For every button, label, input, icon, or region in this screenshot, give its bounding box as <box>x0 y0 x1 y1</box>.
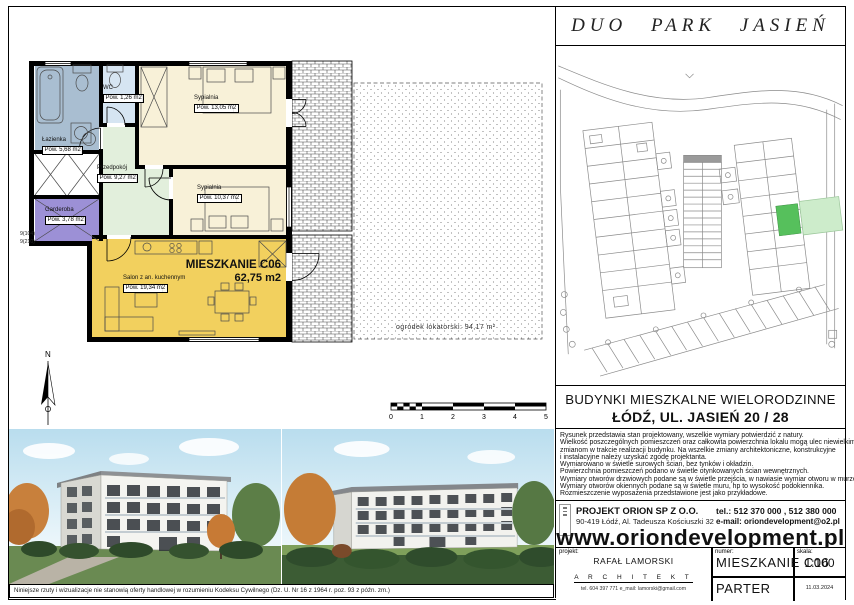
scale-tick: 3 <box>482 414 486 421</box>
architect-name: RAFAŁ LAMORSKI <box>556 556 711 566</box>
site-plan-box <box>556 46 845 386</box>
scale-bar: 0 1 2 3 4 5 <box>389 403 548 421</box>
drawing-floor: PARTER <box>716 581 771 596</box>
room-area: Pow. 3,78 m2 <box>45 216 86 225</box>
dim-label: 9(210) <box>20 239 35 245</box>
dim-label: 9(104) <box>20 231 35 237</box>
render-2-image <box>282 429 554 584</box>
drawing-sheet-page: N 0 1 2 3 4 5 ogródek <box>0 0 854 605</box>
note-line: Wielkość poszczególnych pomieszczeń oraz… <box>560 439 845 446</box>
room-area: Pow. 5,68 m2 <box>42 146 83 155</box>
notes-box: Rysunek przedstawia stan projektowany, w… <box>556 429 845 501</box>
note-line: Rysunek przedstawia stan projektowany, w… <box>560 432 845 439</box>
room-label-bedroom2: Sypialnia Pom. C06.02 Pow. 10,37 m2 <box>197 185 221 193</box>
development-title-box: DUO PARK JASIEŃ <box>556 7 845 46</box>
site-building-left <box>583 121 689 319</box>
room-name: Sypialnia <box>194 95 218 102</box>
site-plan-drawing <box>556 46 845 384</box>
garden-label: ogródek lokatorski: 94,17 m² <box>396 324 496 331</box>
room-area: Pow. 1,26 m2 <box>103 94 144 103</box>
company-box: PROJEKT ORION SP Z O.O. 90-419 Łódź, Al.… <box>556 501 845 548</box>
site-unit-garden <box>799 197 843 235</box>
render-1-image <box>9 429 281 584</box>
room-fills <box>35 65 286 337</box>
room-name: Garderoba <box>45 207 74 214</box>
note-line: Wymiarowano w świetle surowych ścian, be… <box>560 461 845 468</box>
scale-tick: 2 <box>451 414 455 421</box>
terrace-hatch <box>292 61 352 342</box>
building-render-1 <box>9 429 281 584</box>
scale-tick: 5 <box>544 414 548 421</box>
legal-disclaimer: Niniejsze rzuty i wizualizacje nie stano… <box>9 584 554 598</box>
note-line: Wymiary otworów drzwiowych podane są w ś… <box>560 476 845 483</box>
shaft-zone-fill <box>35 154 99 195</box>
room-label-hall: Przedpokój Pom. C06.07 Pow. 9,27 m2 <box>97 165 127 173</box>
scale-tick: 1 <box>420 414 424 421</box>
project-address: ŁÓDŹ, UL. JASIEŃ 20 / 28 <box>556 409 845 425</box>
room-area: Pow. 10,37 m2 <box>197 194 242 203</box>
tenant-garden <box>354 83 542 339</box>
room-label-bedroom1: Sypialnia Pom. C06.03 Pow. 13,05 m2 <box>194 95 218 103</box>
architect-title: A R C H I T E K T <box>574 574 693 583</box>
project-title-box: BUDYNKI MIESZKALNE WIELORODZINNE ŁÓDŹ, U… <box>556 386 845 429</box>
drawing-scale: 1:100 <box>794 556 845 570</box>
floor-plan-area: N 0 1 2 3 4 5 ogródek <box>9 7 555 429</box>
legal-disclaimer-text: Niniejsze rzuty i wizualizacje nie stano… <box>14 587 390 594</box>
site-building-right <box>716 133 845 297</box>
project-type: BUDYNKI MIESZKALNE WIELORODZINNE <box>556 392 845 407</box>
floor-plan-drawing: N 0 1 2 3 4 5 ogródek <box>9 7 555 429</box>
titleblock-divider <box>711 576 845 578</box>
title-column: DUO PARK JASIEŃ <box>555 7 845 598</box>
drawing-date: 11.03.2024 <box>794 585 845 591</box>
sheet-frame: N 0 1 2 3 4 5 ogródek <box>8 6 846 600</box>
room-name: Sypialnia <box>197 185 221 192</box>
apartment-name: MIESZKANIE C06 <box>171 259 281 272</box>
architect-block: RAFAŁ LAMORSKI A R C H I T E K T tel. 60… <box>556 556 711 592</box>
label-project: projekt: <box>559 549 579 555</box>
room-area: Pow. 9,27 m2 <box>97 174 138 183</box>
site-parking-center <box>684 155 722 267</box>
note-line: Powierzchnia pomieszczeń podano w świetl… <box>560 468 845 475</box>
room-area: Pow. 13,05 m2 <box>194 104 239 113</box>
company-phone: tel.: 512 370 000 , 512 380 000 <box>716 506 836 516</box>
room-label-wc: WC Pom. C06.05 Pow. 1,26 m2 <box>103 85 113 93</box>
titleblock-divider <box>711 548 713 601</box>
room-name: WC <box>103 85 113 92</box>
development-title: DUO PARK JASIEŃ <box>571 15 830 37</box>
site-parking-diagonal <box>584 285 838 376</box>
scale-tick: 0 <box>389 414 393 421</box>
north-arrow: N <box>41 350 55 425</box>
building-render-2 <box>281 429 554 584</box>
apartment-title: MIESZKANIE C06 62,75 m2 <box>171 259 281 285</box>
room-name: Przedpokój <box>97 165 127 172</box>
scale-tick: 4 <box>513 414 517 421</box>
room-area: Pow. 19,34 m2 <box>123 284 168 293</box>
architect-contact: tel. 604 397 771 e_mail: lamorski@gmail.… <box>556 586 711 592</box>
note-line: Wymiary otworów okiennych podane są w św… <box>560 483 845 490</box>
title-block: projekt: numer: skala: RAFAŁ LAMORSKI A … <box>556 548 845 601</box>
site-unit-highlight <box>776 204 801 236</box>
note-line: zmianom w trakcie realizacji budynku. Na… <box>560 447 845 454</box>
apartment-area: 62,75 m2 <box>171 272 281 285</box>
company-name: PROJEKT ORION SP Z O.O. <box>576 506 698 516</box>
room-name: Łazienka <box>42 137 66 144</box>
note-line: i instalacyjne należy uzyskać zgodę proj… <box>560 454 845 461</box>
note-line: Rozmieszczenie wyposażenia przedstawione… <box>560 490 845 497</box>
room-label-bathroom: Łazienka Pom. C06.04 Pow. 5,68 m2 <box>42 137 66 145</box>
north-label: N <box>45 350 51 359</box>
room-label-wardrobe: Garderoba Pom. C06.06 Pow. 3,78 m2 <box>45 207 74 215</box>
